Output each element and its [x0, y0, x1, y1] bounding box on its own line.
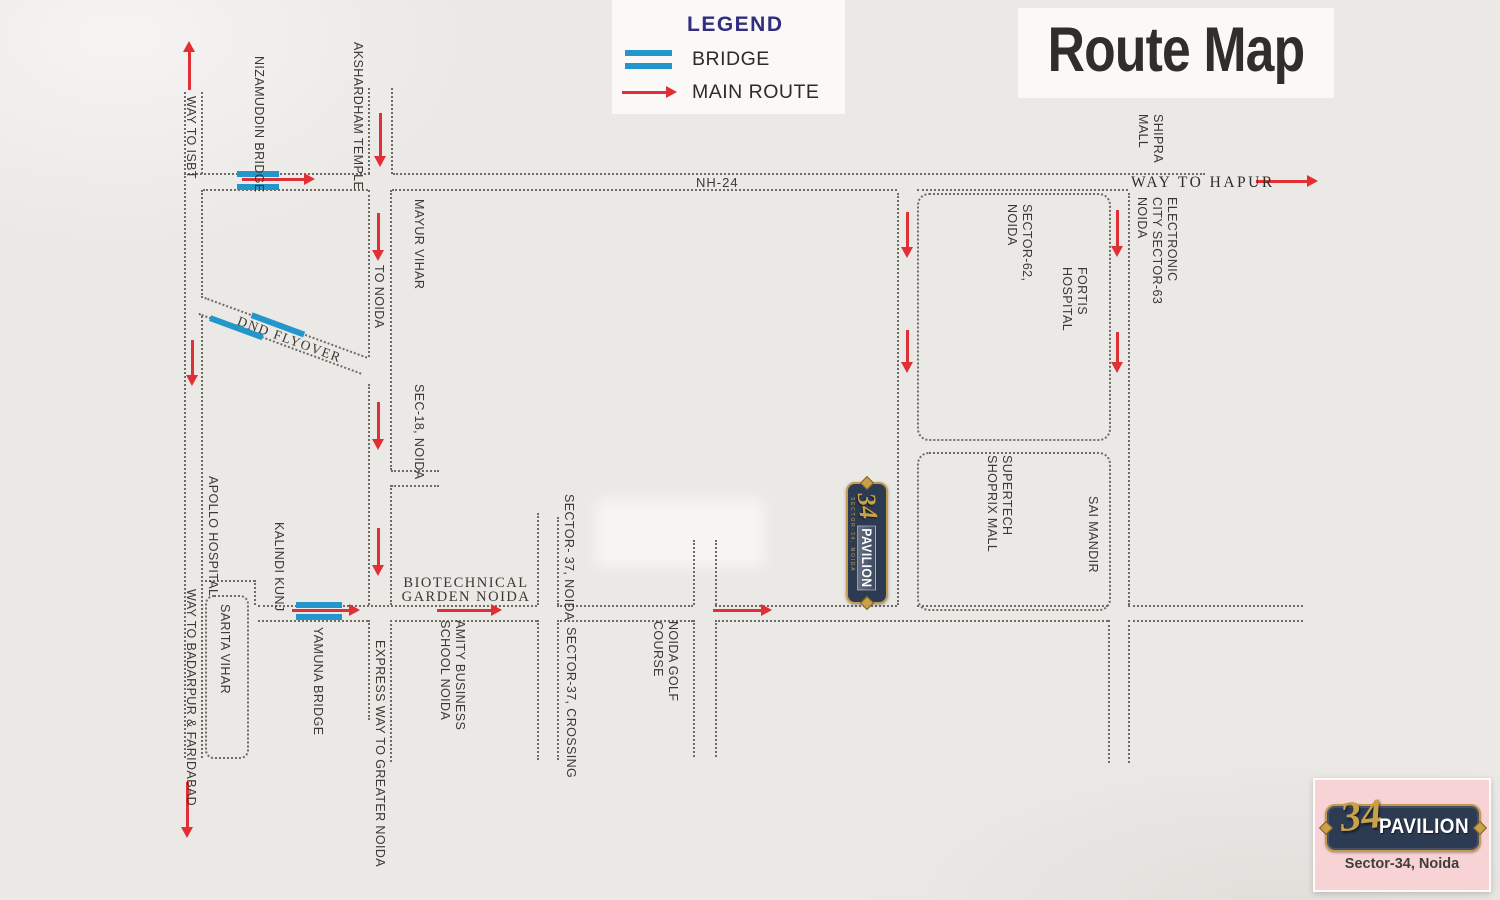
route-arrow-left-road: [191, 340, 194, 375]
place-label-fortis-hospital: FORTIS HOSPITAL: [1059, 267, 1089, 331]
legend-bridge-label: BRIDGE: [692, 48, 770, 71]
project-marker: 34 PAVILION SECTOR-34, NOIDA: [846, 482, 888, 604]
route-arrow-akshardham: [379, 113, 382, 156]
road-sector37-west-edge: [537, 513, 539, 605]
road-to-noida-east-edge: [390, 485, 392, 605]
place-label-shipra-mall: SHIPRA MALL: [1135, 114, 1165, 163]
road-golf-east-edge: [715, 620, 717, 757]
side-street-south-edge: [391, 485, 439, 487]
road-golf-east-edge: [715, 540, 717, 605]
route-arrow-pavilion-1: [906, 212, 909, 247]
road-to-noida-east-edge: [390, 190, 392, 470]
route-arrow-to-noida-3: [377, 528, 380, 565]
route-arrow-to-noida-1: [377, 213, 380, 250]
route-arrow-electronic-2: [1116, 332, 1119, 362]
yamuna-bridge-mark: [296, 614, 342, 620]
road-label-express-way: EXPRESS WAY TO GREATER NOIDA: [372, 640, 387, 867]
road-expressway-east-edge: [390, 620, 392, 762]
logo-name: PAVILION: [1379, 815, 1469, 839]
road-expressway-west-edge: [368, 620, 370, 720]
road-bottom-south-edge: [715, 620, 1108, 622]
route-arrow-pavilion-2: [906, 330, 909, 362]
route-map: DND FLYOVER WAY TO ISBT NIZAMUDDIN BRIDG…: [0, 0, 1500, 900]
road-label-way-to-badarpur: WAY TO BADARPUR & FARIDABAD: [183, 589, 198, 806]
brand-logo: 34 PAVILION Sector-34, Noida: [1313, 778, 1491, 892]
road-akshardham-east-edge: [391, 88, 393, 174]
road-bottom-south-edge: [258, 620, 368, 622]
road-label-yamuna-bridge: YAMUNA BRIDGE: [310, 627, 325, 735]
road-label-nizamuddin-bridge: NIZAMUDDIN BRIDGE: [251, 56, 266, 193]
road-label-akshardham-temple: AKSHARDHAM TEMPLE: [350, 42, 365, 190]
road-way-to-isbt-east-edge: [201, 190, 203, 298]
road-sector37-east-edge: [557, 620, 559, 760]
place-label-sector-62: SECTOR-62, NOIDA: [1004, 204, 1034, 281]
road-electronic-city-east-edge: [1128, 620, 1130, 763]
road-golf-west-edge: [693, 620, 695, 757]
road-nh24-south-edge: [392, 189, 897, 191]
route-arrow-to-noida-2: [377, 402, 380, 439]
supertech-block: [917, 452, 1111, 611]
marker-number: 34: [851, 491, 884, 520]
road-sector37-west-edge: [537, 620, 539, 760]
road-way-to-isbt-east-edge: [201, 92, 203, 174]
diamond-icon: [1319, 821, 1333, 835]
road-nh24-north-edge: [393, 173, 1205, 175]
road-label-sector-37-crossing: SECTOR-37, CROSSING: [563, 627, 578, 778]
legend-main-route-icon: [622, 91, 666, 94]
legend-bridge-icon: [625, 50, 672, 56]
logo-plaque: 34 PAVILION: [1325, 804, 1481, 852]
road-sai-mandir-west-edge: [1108, 620, 1110, 763]
road-label-dnd-flyover: DND FLYOVER: [212, 305, 368, 375]
road-bottom-north-edge: [557, 605, 693, 607]
title-box: Route Map: [1018, 8, 1334, 98]
place-label-sai-mandir: SAI MANDIR: [1085, 496, 1100, 573]
place-label-sarita-vihar: SARITA VIHAR: [217, 604, 232, 694]
road-nh24-south-edge: [203, 189, 368, 191]
route-arrow-up-isbt: [188, 52, 191, 90]
road-golf-west-edge: [693, 540, 695, 605]
legend-bridge-icon: [625, 63, 672, 69]
legend-heading: LEGEND: [687, 13, 784, 37]
dnd-flyover-road: DND FLYOVER: [198, 297, 367, 375]
road-electronic-city-east-edge: [1128, 193, 1130, 605]
place-label-supertech-shoprix: SUPERTECH SHOPRIX MALL: [984, 455, 1014, 552]
road-to-noida-west-edge: [368, 190, 370, 357]
watermark: [595, 498, 765, 568]
road-label-kalindi-kunj: KALINDI KUNJ: [271, 522, 286, 612]
road-label-nh24: NH-24: [696, 175, 739, 190]
road-nh24-south-edge: [917, 189, 1128, 191]
road-pavilion-west-edge: [897, 193, 899, 605]
logo-address: Sector-34, Noida: [1315, 856, 1489, 872]
road-label-way-to-hapur: WAY TO HAPUR: [1131, 174, 1275, 192]
yamuna-bridge-mark: [296, 602, 342, 608]
place-label-apollo-hospital: APOLLO HOSPITAL: [205, 476, 220, 596]
road-label-way-to-isbt: WAY TO ISBT: [183, 96, 198, 179]
road-label-sector-37-noida: SECTOR- 37, NOIDA: [561, 494, 576, 621]
place-label-amity: AMITY BUSINESS SCHOOL NOIDA: [437, 620, 467, 730]
place-label-electronic-city: ELECTRONIC CITY SECTOR-63 NOIDA: [1134, 197, 1179, 304]
road-to-noida-west-edge: [368, 384, 370, 605]
route-arrow-electronic-1: [1116, 210, 1119, 246]
road-sector37-east-edge: [557, 517, 559, 605]
page-title: Route Map: [1046, 14, 1305, 86]
logo-number: 34: [1338, 790, 1385, 842]
diamond-icon: [1473, 821, 1487, 835]
road-label-to-noida: TO NOIDA: [371, 265, 386, 328]
route-arrow-yamuna: [292, 609, 349, 612]
place-label-noida-golf-course: NOIDA GOLF COURSE: [650, 621, 680, 701]
road-bottom-south-edge: [1128, 620, 1303, 622]
place-label-biotechnical-garden: BIOTECHNICAL GARDEN NOIDA: [398, 576, 534, 604]
route-arrow-biotech: [437, 609, 491, 612]
road-kalindi-corner-edge: [254, 580, 256, 605]
marker-subtitle: SECTOR-34, NOIDA: [849, 497, 855, 572]
route-arrow-bottom-road: [713, 609, 761, 612]
road-label-mayur-vihar: MAYUR VIHAR: [411, 199, 426, 289]
road-way-to-isbt-east-edge: [201, 316, 203, 758]
road-bottom-north-edge: [1128, 605, 1303, 607]
legend-main-route-label: MAIN ROUTE: [692, 81, 819, 104]
road-label-sec-18: SEC-18, NOIDA: [411, 384, 426, 480]
legend-box: LEGEND BRIDGE MAIN ROUTE: [612, 0, 845, 114]
road-akshardham-west-edge: [368, 88, 370, 174]
marker-name: PAVILION: [858, 525, 877, 590]
